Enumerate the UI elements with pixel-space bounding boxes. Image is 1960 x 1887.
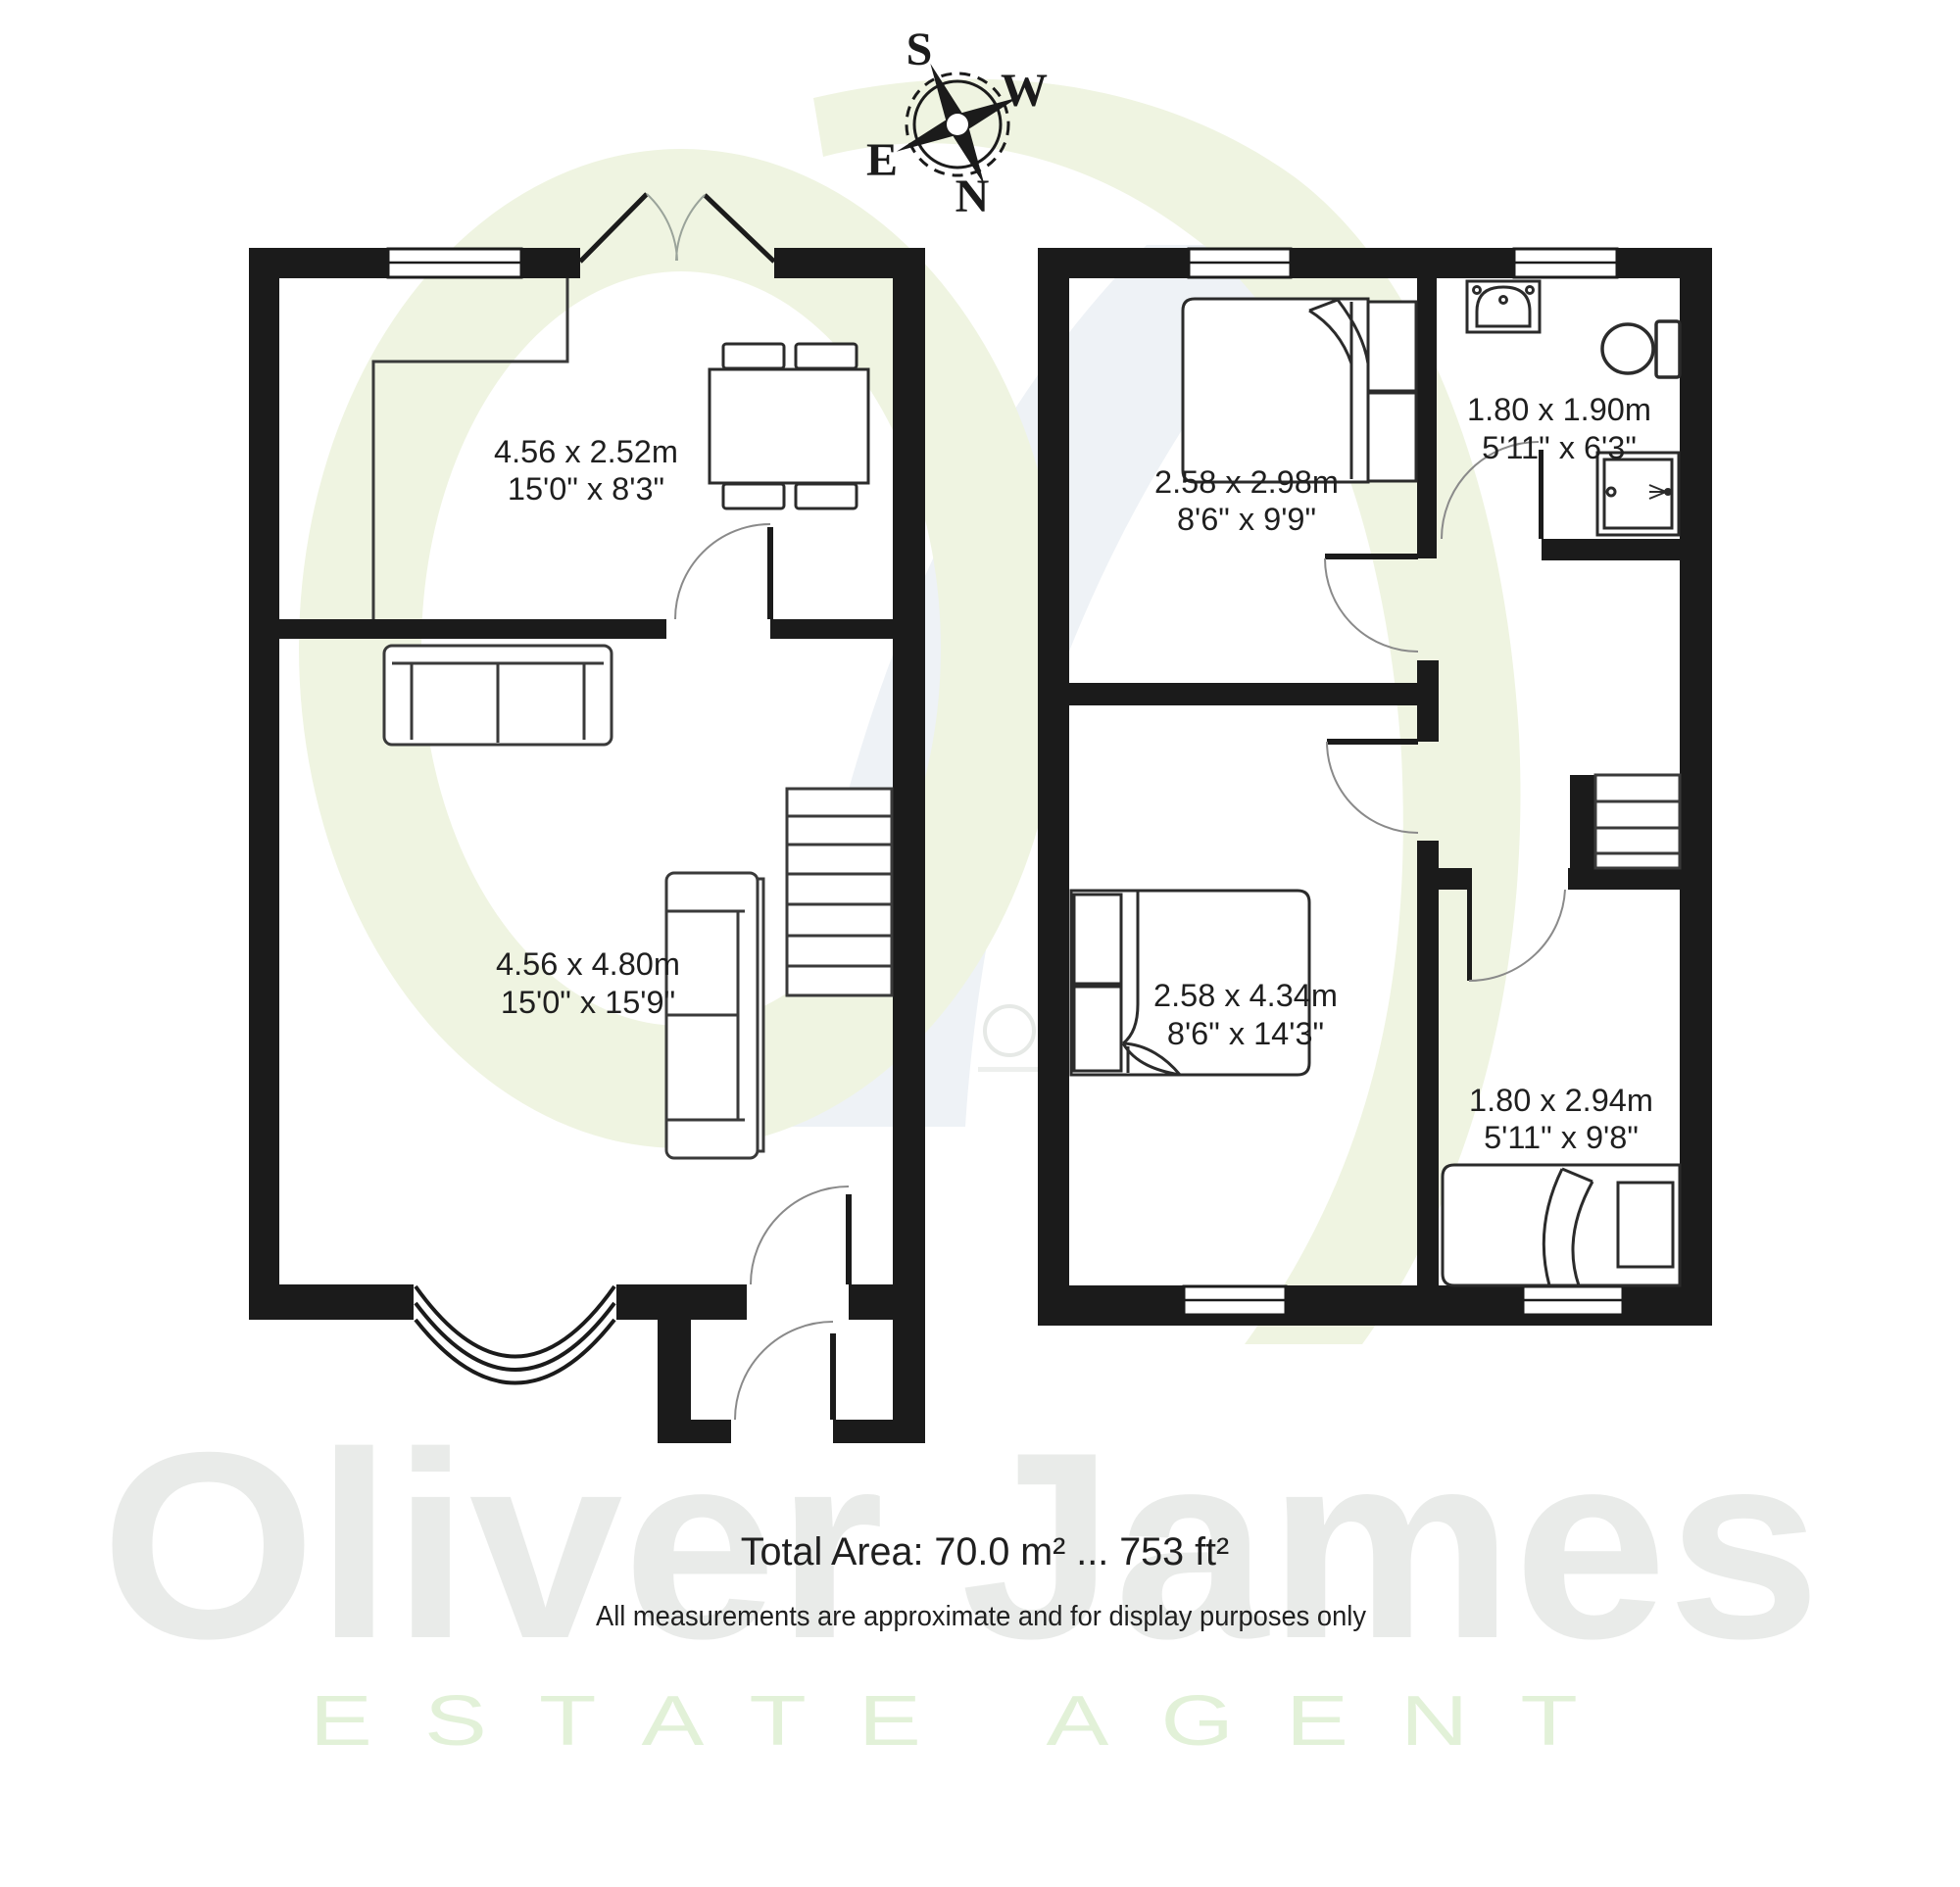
svg-text:ESTATE AGENT: ESTATE AGENT bbox=[310, 1682, 1630, 1761]
svg-text:S: S bbox=[906, 24, 933, 75]
svg-text:W: W bbox=[1001, 65, 1048, 117]
svg-text:E: E bbox=[866, 134, 898, 186]
svg-text:5'11" x 9'8": 5'11" x 9'8" bbox=[1484, 1120, 1639, 1155]
svg-text:N: N bbox=[955, 170, 990, 222]
svg-text:2.58 x 4.34m: 2.58 x 4.34m bbox=[1153, 978, 1338, 1013]
svg-text:1.80 x 1.90m: 1.80 x 1.90m bbox=[1467, 392, 1651, 427]
svg-text:All measurements are approxima: All measurements are approximate and for… bbox=[596, 1601, 1366, 1632]
svg-text:Total Area: 70.0 m² ... 753 ft: Total Area: 70.0 m² ... 753 ft² bbox=[741, 1530, 1229, 1573]
svg-text:4.56 x 4.80m: 4.56 x 4.80m bbox=[496, 946, 680, 982]
svg-text:2.58 x 2.98m: 2.58 x 2.98m bbox=[1154, 464, 1339, 500]
svg-text:4.56 x 2.52m: 4.56 x 2.52m bbox=[494, 434, 678, 469]
svg-text:5'11" x 6'3": 5'11" x 6'3" bbox=[1482, 430, 1637, 465]
svg-text:15'0" x 8'3": 15'0" x 8'3" bbox=[508, 471, 664, 507]
svg-text:8'6" x 14'3": 8'6" x 14'3" bbox=[1167, 1016, 1324, 1051]
svg-text:15'0" x 15'9": 15'0" x 15'9" bbox=[501, 985, 675, 1020]
svg-text:8'6" x 9'9": 8'6" x 9'9" bbox=[1177, 502, 1316, 537]
svg-text:1.80 x 2.94m: 1.80 x 2.94m bbox=[1469, 1083, 1653, 1118]
